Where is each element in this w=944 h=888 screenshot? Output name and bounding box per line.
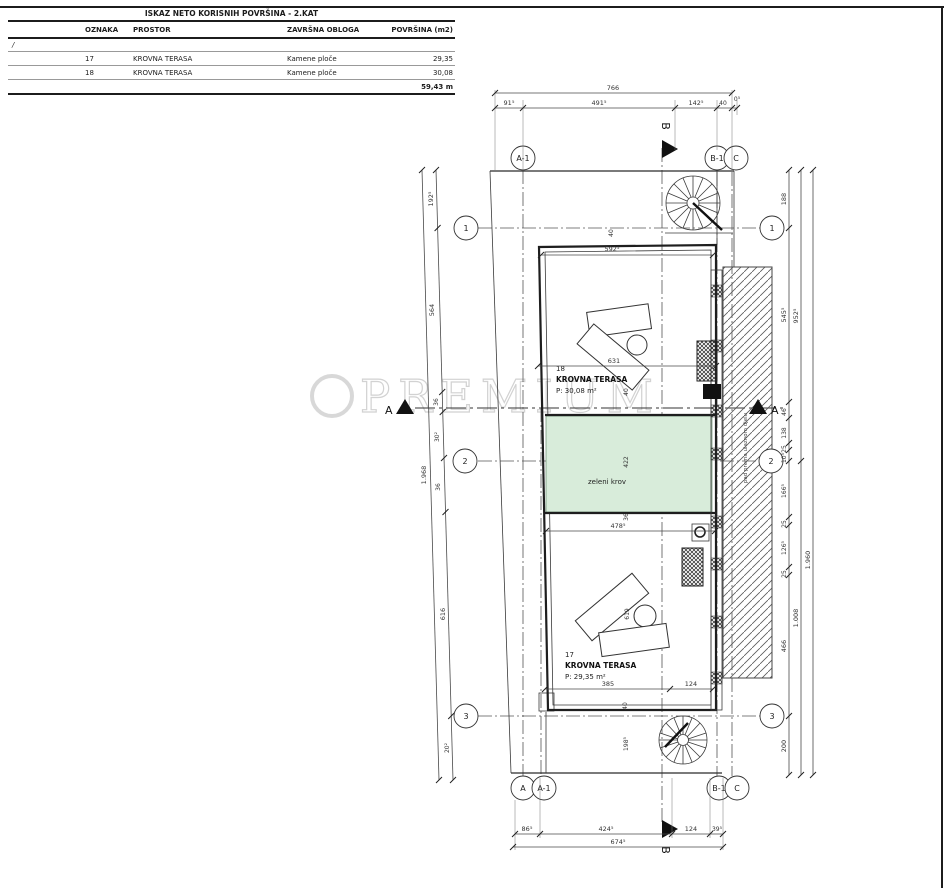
planter-bottom xyxy=(682,548,703,586)
table-round xyxy=(634,605,656,627)
table-round xyxy=(627,335,647,355)
planter-top xyxy=(697,341,717,381)
section-a-label-left: A xyxy=(385,404,393,417)
t17-name: KROVNA TERASA xyxy=(565,661,636,670)
solid-pillar xyxy=(703,384,721,399)
svg-text:46: 46 xyxy=(781,408,788,416)
svg-text:25: 25 xyxy=(781,520,788,528)
svg-text:200: 200 xyxy=(780,740,788,752)
svg-text:616: 616 xyxy=(439,608,447,620)
floor-plan: PREMIUM xyxy=(0,0,944,888)
dim-right: 188 545⁵ 46 138 25 10⁵ 166⁵ 25 126⁵ 25 4… xyxy=(780,167,816,778)
green-roof-label: zeleni krov xyxy=(588,478,626,486)
grid-bubble: 1 xyxy=(454,216,478,240)
svg-text:1: 1 xyxy=(463,224,468,233)
grid-bubble: 1 xyxy=(760,216,784,240)
t17-number: 17 xyxy=(565,651,574,659)
svg-text:142⁵: 142⁵ xyxy=(688,99,703,107)
svg-text:1: 1 xyxy=(769,224,774,233)
svg-text:10⁵: 10⁵ xyxy=(781,452,788,463)
svg-text:25: 25 xyxy=(781,445,788,453)
t18-name: KROVNA TERASA xyxy=(556,375,627,384)
svg-text:631: 631 xyxy=(608,357,620,365)
spiral-stair-bottom xyxy=(659,716,707,764)
svg-text:40: 40 xyxy=(622,702,629,710)
svg-text:138: 138 xyxy=(781,427,788,439)
svg-text:25: 25 xyxy=(781,570,788,578)
spiral-stair-top xyxy=(666,176,722,230)
svg-text:0⁵: 0⁵ xyxy=(734,96,741,103)
grid-bubble: 3 xyxy=(454,704,478,728)
svg-text:39⁵: 39⁵ xyxy=(712,826,723,833)
svg-text:385: 385 xyxy=(602,680,614,688)
wall-slope-note: pad prema ulaznom djelu xyxy=(743,413,749,483)
grid-bubble: A-1 xyxy=(532,776,556,800)
svg-text:952⁵: 952⁵ xyxy=(792,308,800,323)
svg-text:B-1: B-1 xyxy=(712,784,725,793)
svg-text:422: 422 xyxy=(623,456,630,468)
svg-text:1.960: 1.960 xyxy=(804,551,812,570)
svg-text:40: 40 xyxy=(623,388,630,396)
section-a-label-right: A xyxy=(771,404,779,417)
lounger xyxy=(599,623,670,656)
svg-text:20²: 20² xyxy=(444,742,451,753)
svg-text:198⁵: 198⁵ xyxy=(623,736,630,750)
roof-vent xyxy=(692,524,709,541)
svg-text:478⁵: 478⁵ xyxy=(610,522,625,530)
svg-text:564: 564 xyxy=(428,304,436,316)
svg-text:192⁵: 192⁵ xyxy=(427,191,435,206)
svg-text:3: 3 xyxy=(769,712,774,721)
svg-text:424⁵: 424⁵ xyxy=(598,825,613,833)
grid-bubble: 3 xyxy=(760,704,784,728)
svg-text:91⁵: 91⁵ xyxy=(504,99,515,107)
svg-text:2: 2 xyxy=(462,457,467,466)
svg-text:3: 3 xyxy=(463,712,468,721)
svg-text:466: 466 xyxy=(780,640,788,652)
dim-left: 192⁵ 564 36 30² 36 616 20² 1.968 xyxy=(419,167,456,783)
section-b-label-top: B xyxy=(659,122,672,130)
grid-bubble: A xyxy=(511,776,535,800)
svg-text:124: 124 xyxy=(685,680,697,688)
svg-text:36: 36 xyxy=(433,398,440,406)
svg-text:545⁵: 545⁵ xyxy=(780,307,788,322)
svg-text:30²: 30² xyxy=(434,431,441,442)
svg-text:491⁵: 491⁵ xyxy=(591,99,606,107)
svg-text:36: 36 xyxy=(623,513,630,521)
section-b-arrow-top xyxy=(662,140,678,158)
grid-bubble: 2 xyxy=(453,449,477,473)
svg-text:126⁵: 126⁵ xyxy=(781,540,788,554)
grid-bubble: C xyxy=(725,776,749,800)
grid-bubble: C xyxy=(724,146,748,170)
svg-text:40: 40 xyxy=(719,100,727,107)
svg-text:166⁵: 166⁵ xyxy=(781,483,788,497)
svg-text:A-1: A-1 xyxy=(537,784,550,793)
svg-text:1.968: 1.968 xyxy=(420,466,428,485)
svg-text:40: 40 xyxy=(608,229,615,237)
svg-text:36: 36 xyxy=(435,483,442,491)
t17-area: P: 29,35 m² xyxy=(565,673,606,681)
svg-text:C: C xyxy=(733,154,739,163)
svg-text:124: 124 xyxy=(685,825,697,833)
svg-text:766: 766 xyxy=(607,84,619,92)
svg-text:86⁵: 86⁵ xyxy=(522,825,533,833)
svg-text:B-1: B-1 xyxy=(710,154,723,163)
svg-text:188: 188 xyxy=(780,193,788,205)
svg-text:A: A xyxy=(520,784,526,793)
svg-text:592⁵: 592⁵ xyxy=(604,245,619,253)
svg-text:C: C xyxy=(734,784,740,793)
t18-area: P: 30,08 m² xyxy=(556,387,597,395)
grid-bubble: 2 xyxy=(759,449,783,473)
svg-text:619: 619 xyxy=(624,608,631,620)
svg-text:674⁵: 674⁵ xyxy=(610,838,625,846)
neighbour-building: pad prema ulaznom djelu xyxy=(711,267,772,710)
svg-text:1.008: 1.008 xyxy=(792,609,800,628)
svg-text:2: 2 xyxy=(768,457,773,466)
